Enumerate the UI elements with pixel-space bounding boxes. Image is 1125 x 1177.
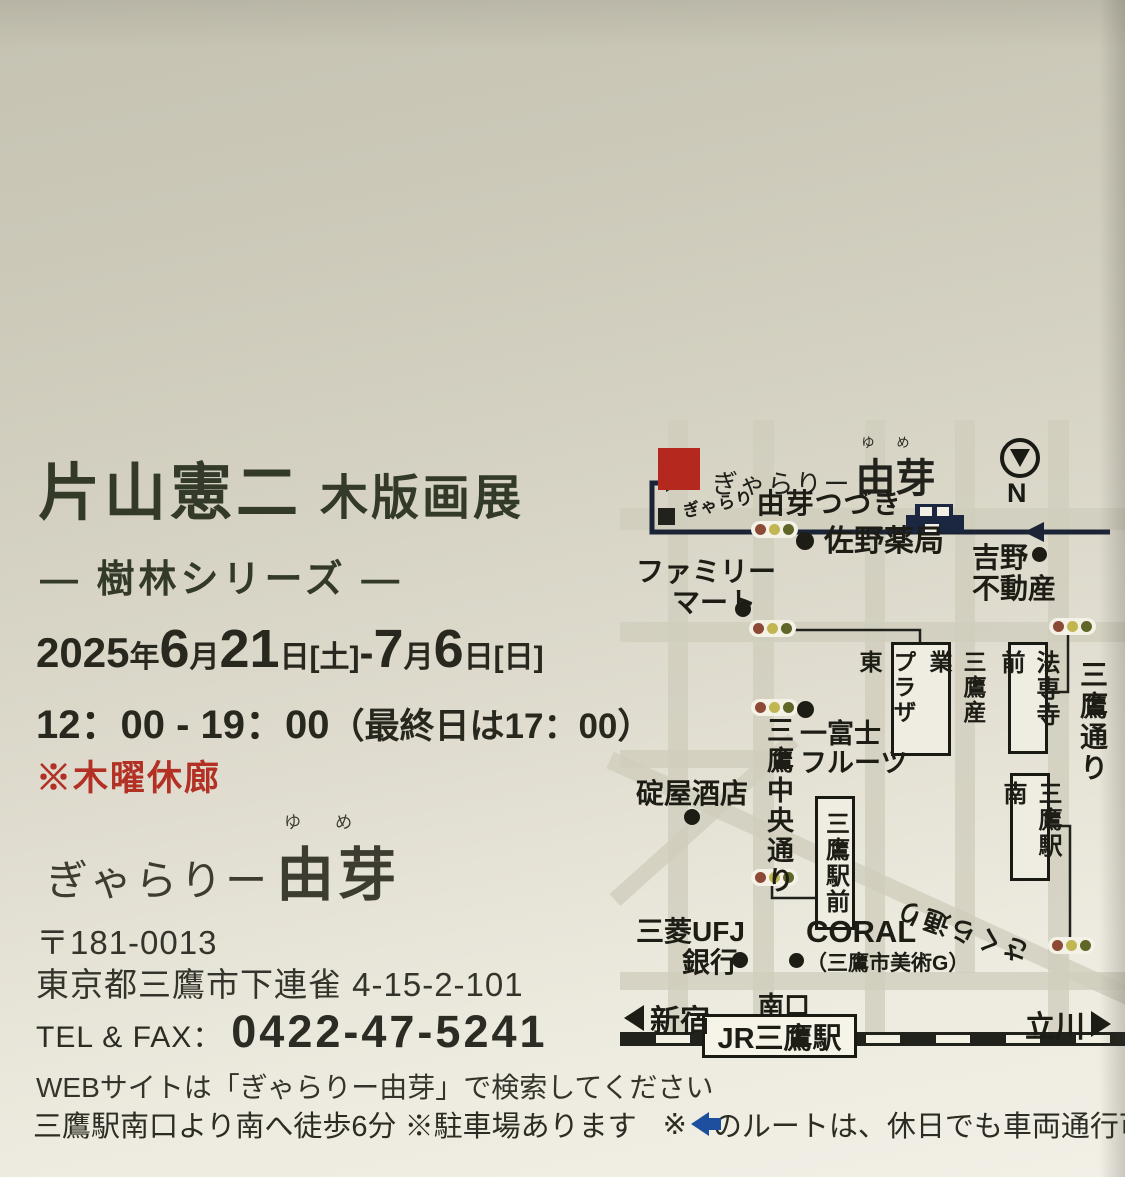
- compass-n-label: N: [1007, 478, 1027, 509]
- web-search-note: WEBサイトは「ぎゃらりー由芽」で検索してください: [36, 1066, 714, 1106]
- direction-shinjuku: 新宿: [624, 996, 710, 1040]
- place-mitsubishi-ufj-bank: 三菱UFJ 銀行: [636, 916, 745, 978]
- gallery-logo-script: ぎゃらりー: [46, 847, 270, 912]
- place-marker-dot: [789, 953, 804, 968]
- traffic-light-icon: [749, 620, 796, 637]
- tel-number: 0422-47-5241: [231, 1006, 547, 1058]
- annex-script: ぎゃらり: [680, 482, 755, 521]
- postal-code: 〒181-0013: [36, 916, 217, 964]
- opening-hours: 12：00 - 19：00（最終日は17：00）: [36, 692, 652, 750]
- date-range-dash: -: [360, 629, 374, 677]
- gallery-logo: ぎゃらりー ゆめ 由芽: [46, 828, 400, 912]
- street-name-chuo-dori: 三鷹中央通り: [759, 716, 798, 896]
- photo-shadow: [1099, 0, 1125, 1177]
- access-asterisk: ※: [663, 1107, 687, 1142]
- place-marker-dot: [735, 601, 751, 617]
- place-familymart: ファミリー マート: [636, 556, 776, 618]
- place-marker-dot: [1032, 547, 1047, 562]
- route-arrow-west-icon: [1024, 522, 1044, 542]
- closed-day-notice: ※木曜休廊: [36, 750, 221, 801]
- date-start-weekday: 日[土]: [280, 632, 360, 676]
- place-ikariya-sakaten: 碇屋酒店: [636, 778, 748, 809]
- access-holiday-note: のルートは、休日でも車両通行可: [713, 1103, 1125, 1145]
- exhibition-flyer: 片山憲二木版画展 ― 樹林シリーズ ― 2025 年 6 月 21 日[土] -…: [0, 0, 1125, 1177]
- box-mitaka-ekimae: 三鷹駅前: [815, 796, 855, 930]
- date-end-month: 7: [374, 618, 404, 680]
- traffic-light-icon: [1049, 618, 1096, 635]
- date-start-month: 6: [159, 618, 189, 680]
- tel-label: TEL & FAX：: [36, 1012, 223, 1056]
- exhibition-title: 片山憲二木版画展: [38, 442, 524, 532]
- date-end-weekday: 日[日]: [464, 632, 544, 676]
- hours-main: 12：00 - 19：00: [36, 703, 330, 747]
- west-arrow-icon: [624, 1005, 644, 1031]
- box-hosenji-mae: 法専寺前: [1008, 642, 1048, 754]
- place-coral: CORAL （三鷹市美術G）: [806, 916, 969, 980]
- street-address: 東京都三鷹市下連雀 4-15-2-101: [36, 958, 524, 1006]
- annex-name: 由芽つづき: [757, 482, 902, 522]
- holiday-route-arrow-icon: [691, 1112, 709, 1136]
- place-ichifuji-fruits: 一富士 フルーツ: [800, 720, 907, 778]
- artist-name: 片山憲二: [38, 459, 302, 528]
- place-sano-pharmacy: 佐野薬局: [824, 526, 944, 557]
- hours-lastday-note: （最終日は17：00）: [330, 707, 653, 746]
- box-mitaka-eki-minami: 三鷹駅南: [1010, 773, 1050, 881]
- exhibition-dates: 2025 年 6 月 21 日[土] - 7 月 6 日[日]: [36, 618, 544, 680]
- date-start-day: 21: [219, 618, 279, 680]
- map-gallery-annex-label: ぎゃらり 由芽つづき: [682, 482, 902, 522]
- access-map: ぎゃらりー ゆめ 由芽 ぎゃらり 由芽つづき N 佐野薬局 ファミリー マート: [620, 420, 1125, 1082]
- place-marker-dot: [796, 532, 814, 550]
- photo-shadow: [0, 0, 1125, 50]
- access-walk-note: 三鷹駅南口より南へ徒歩6分 ※駐車場あります: [33, 1103, 637, 1145]
- date-year: 2025: [36, 629, 129, 677]
- place-marker-dot: [732, 952, 748, 968]
- map-gallery-furigana: ゆめ: [861, 432, 931, 451]
- gallery-logo-name: 由芽: [276, 843, 400, 908]
- tel-fax: TEL & FAX： 0422-47-5241: [36, 1006, 548, 1058]
- series-subtitle: ― 樹林シリーズ ―: [40, 548, 403, 603]
- jr-mitaka-station-label: JR三鷹駅: [702, 1014, 857, 1058]
- gallery-annex-marker: [658, 508, 675, 525]
- access-note: 三鷹駅南口より南へ徒歩6分 ※駐車場あります ※ のルートは、休日でも車両通行可: [33, 1103, 1125, 1145]
- traffic-light-icon: [1048, 937, 1095, 954]
- place-marker-dot: [684, 809, 700, 825]
- date-month-unit: 月: [189, 632, 219, 676]
- exhibition-type: 木版画展: [320, 472, 524, 525]
- date-end-day: 6: [434, 618, 464, 680]
- north-compass-icon: [1000, 438, 1040, 478]
- gallery-logo-furigana: ゆめ: [284, 808, 386, 833]
- traffic-light-icon: [751, 699, 798, 716]
- place-marker-dot: [797, 701, 814, 718]
- date-month-unit2: 月: [404, 632, 434, 676]
- traffic-light-icon: [751, 521, 798, 538]
- date-year-unit: 年: [129, 632, 159, 676]
